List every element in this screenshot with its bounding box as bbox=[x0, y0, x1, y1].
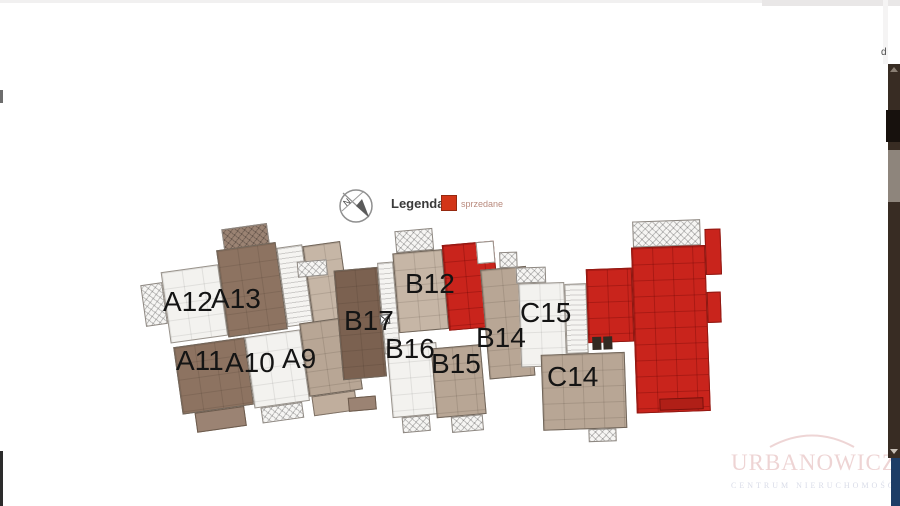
building-block-c bbox=[514, 220, 727, 445]
watermark-subtitle: CENTRUM NIERUCHOMOŚCI bbox=[731, 481, 889, 490]
elevator-symbol bbox=[592, 337, 601, 350]
unit-label-b14: B14 bbox=[476, 324, 526, 352]
watermark-title: URBANOWICZ bbox=[731, 450, 889, 476]
scrollbar-arrow-up-icon[interactable] bbox=[890, 67, 898, 72]
svg-text:N: N bbox=[341, 196, 352, 208]
balcony-b16-bottom bbox=[402, 415, 431, 433]
scrollbar-accent bbox=[891, 458, 900, 506]
legend-sold-label: sprzedane bbox=[461, 199, 503, 209]
unit-label-a9: A9 bbox=[282, 345, 316, 373]
unit-label-a12: A12 bbox=[163, 288, 213, 316]
scrollbar-arrow-down-icon[interactable] bbox=[890, 449, 898, 454]
balcony-b17-bottom bbox=[348, 395, 377, 411]
unit-label-b16: B16 bbox=[385, 335, 435, 363]
unit-label-a11: A11 bbox=[176, 347, 224, 375]
balcony-c14-bottom bbox=[588, 428, 616, 442]
unit-label-b12: B12 bbox=[405, 270, 455, 298]
unit-label-a10: A10 bbox=[225, 349, 275, 377]
unit-label-b15: B15 bbox=[431, 350, 481, 378]
left-edge-mark-top bbox=[0, 90, 3, 103]
balcony-red-bottom bbox=[659, 397, 703, 411]
balcony-b-top-left bbox=[297, 259, 328, 278]
north-compass-icon: N bbox=[335, 185, 377, 232]
top-right-strip bbox=[762, 0, 900, 6]
scrollbar-notch bbox=[886, 110, 900, 142]
edge-text: d bbox=[881, 47, 887, 58]
sold-unit-c-mid-area[interactable] bbox=[586, 268, 635, 344]
balcony-b15-bottom bbox=[451, 414, 484, 433]
legend-sold-swatch bbox=[441, 195, 457, 211]
screen: d N Legenda: sprzedane bbox=[0, 0, 900, 506]
balcony-big-red-top bbox=[632, 219, 701, 247]
left-edge-mark-bottom bbox=[0, 451, 3, 506]
unit-label-c14: C14 bbox=[547, 363, 598, 391]
elevator-symbol bbox=[603, 336, 612, 349]
unit-label-b17: B17 bbox=[344, 307, 394, 335]
balcony-c-left bbox=[499, 252, 518, 269]
balcony-red-right-1 bbox=[704, 228, 722, 275]
balcony-red-right-2 bbox=[707, 291, 722, 322]
unit-label-a13: A13 bbox=[211, 285, 261, 313]
sold-unit-b-notch bbox=[476, 241, 496, 264]
unit-label-c15: C15 bbox=[520, 299, 571, 327]
sold-unit-c-large-area[interactable] bbox=[631, 245, 711, 413]
balcony-c15-top bbox=[516, 267, 547, 284]
scrollbar-thumb[interactable] bbox=[888, 150, 900, 202]
